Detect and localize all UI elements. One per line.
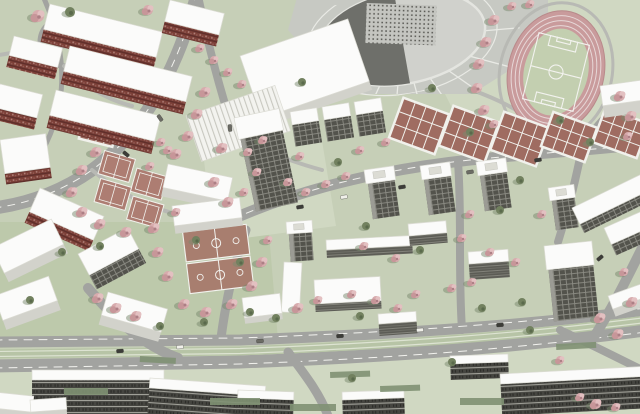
car (176, 345, 183, 349)
car (228, 124, 232, 131)
car (416, 328, 423, 332)
hedge (210, 398, 260, 405)
car (256, 339, 263, 343)
masterplan-rendering (0, 0, 640, 414)
slab-short (408, 221, 448, 246)
hedge (290, 404, 336, 411)
car (336, 334, 343, 338)
corner-building-b (30, 397, 67, 414)
hedge (460, 398, 504, 405)
row-house-a (290, 108, 322, 147)
car (116, 349, 123, 353)
row-house-c (354, 98, 386, 137)
corner-building-a (0, 392, 34, 414)
white-building-w-1 (0, 134, 52, 185)
hedge (64, 388, 108, 395)
block-s (378, 311, 417, 336)
row-house-b (322, 103, 354, 142)
east-connector (458, 162, 462, 330)
car (496, 323, 503, 327)
elevation-block-d (342, 390, 405, 414)
masterplan-svg (0, 0, 640, 414)
